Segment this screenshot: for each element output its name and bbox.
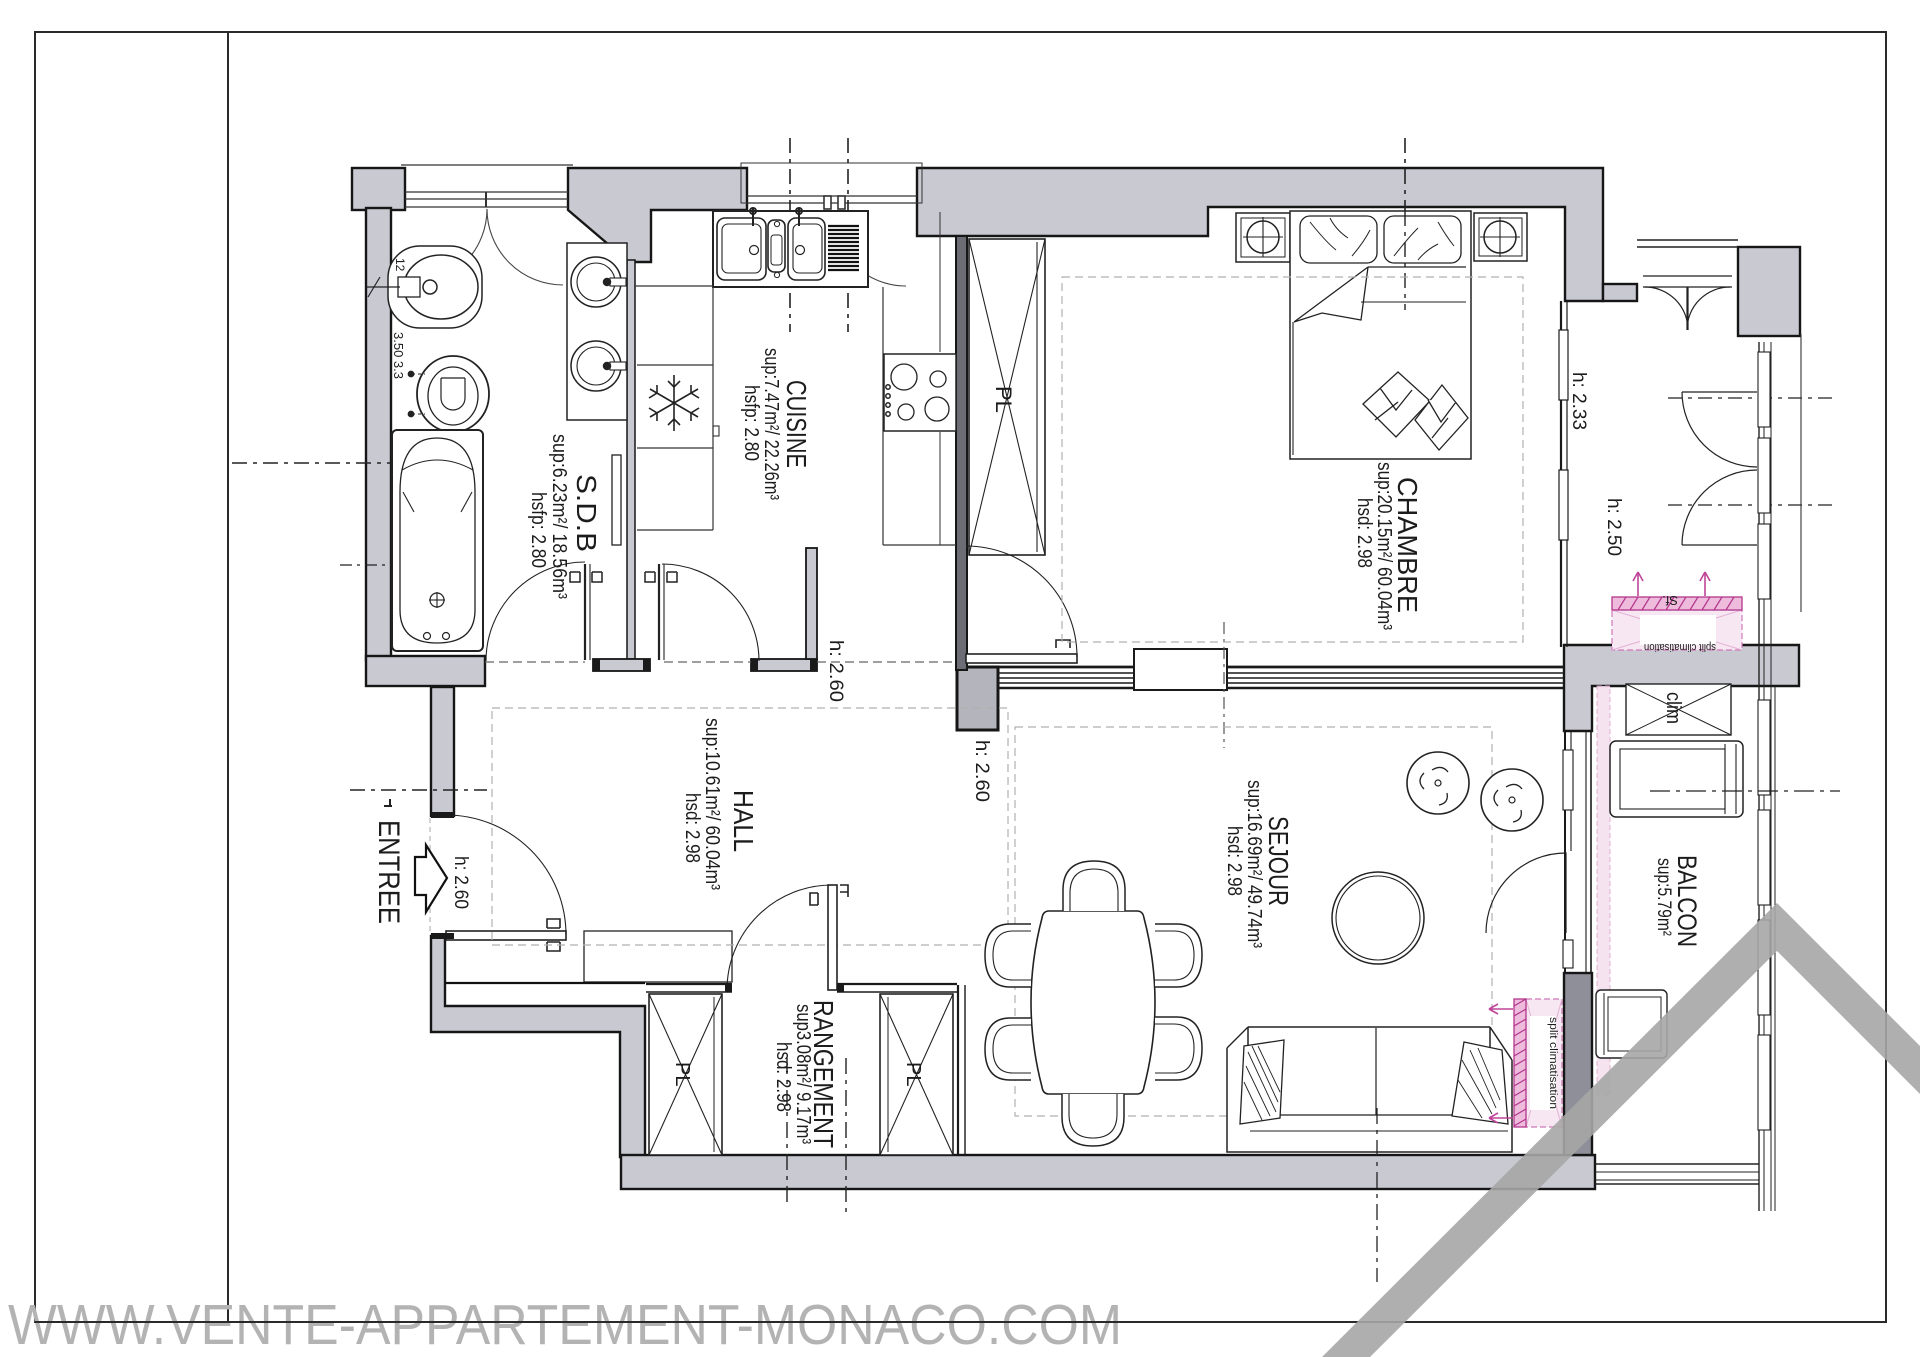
svg-text:sup:16.69m²/ 49.74m³: sup:16.69m²/ 49.74m³ [1243,780,1265,948]
svg-text:split climatisation: split climatisation [1644,641,1716,653]
svg-text:SEJOUR: SEJOUR [1263,816,1294,906]
svg-text:clim: clim [1662,692,1684,724]
svg-text:h: 2.60: h: 2.60 [450,856,471,909]
svg-text:hsd: 2.98: hsd: 2.98 [681,793,703,863]
svg-text:PL: PL [671,1062,693,1086]
svg-text:sup:5.79m²: sup:5.79m² [1653,858,1674,936]
svg-text:HALL: HALL [728,790,759,852]
svg-text:RANGEMENT: RANGEMENT [808,1000,839,1148]
svg-text:h: 2.60: h: 2.60 [825,640,846,702]
svg-text:hsd: 2.98: hsd: 2.98 [1353,498,1375,568]
svg-text:CHAMBRE: CHAMBRE [1392,477,1423,613]
svg-text:sup:6.23m²/ 18.56m³: sup:6.23m²/ 18.56m³ [548,434,570,599]
svg-text:hsfp: 2.80: hsfp: 2.80 [740,385,762,461]
svg-text:PL: PL [991,386,1016,413]
svg-text:sup:20.15m²/ 60.04m³: sup:20.15m²/ 60.04m³ [1373,462,1395,630]
svg-text:sup:7.47m²/ 22.26m³: sup:7.47m²/ 22.26m³ [760,348,782,500]
svg-text:S.D.B: S.D.B [571,474,602,552]
svg-text:3.50 3.3: 3.50 3.3 [391,332,406,379]
svg-text:sup:10.61m²/ 60.04m³: sup:10.61m²/ 60.04m³ [701,718,723,890]
svg-text:split climatisation: split climatisation [1547,1017,1559,1109]
svg-text:hsd: 2.98: hsd: 2.98 [1223,826,1245,896]
svg-text:hsd: 2.98: hsd: 2.98 [772,1042,794,1112]
svg-text:h: 2.60: h: 2.60 [971,740,992,802]
svg-text:PL: PL [902,1062,924,1086]
svg-text:BALCON: BALCON [1672,855,1702,947]
svg-text:WWW.VENTE-APPARTEMENT-MONACO.C: WWW.VENTE-APPARTEMENT-MONACO.COM [8,1293,1122,1357]
svg-text:h: 2.50: h: 2.50 [1603,498,1624,556]
svg-text:CUISINE: CUISINE [781,380,812,468]
svg-text:h: 2.33: h: 2.33 [1568,372,1589,430]
svg-text:12: 12 [393,258,407,272]
svg-text:ENTREE: ENTREE [372,820,405,924]
svg-text:Sf.: Sf. [1662,593,1678,608]
svg-text:hsfp: 2.80: hsfp: 2.80 [527,492,549,568]
